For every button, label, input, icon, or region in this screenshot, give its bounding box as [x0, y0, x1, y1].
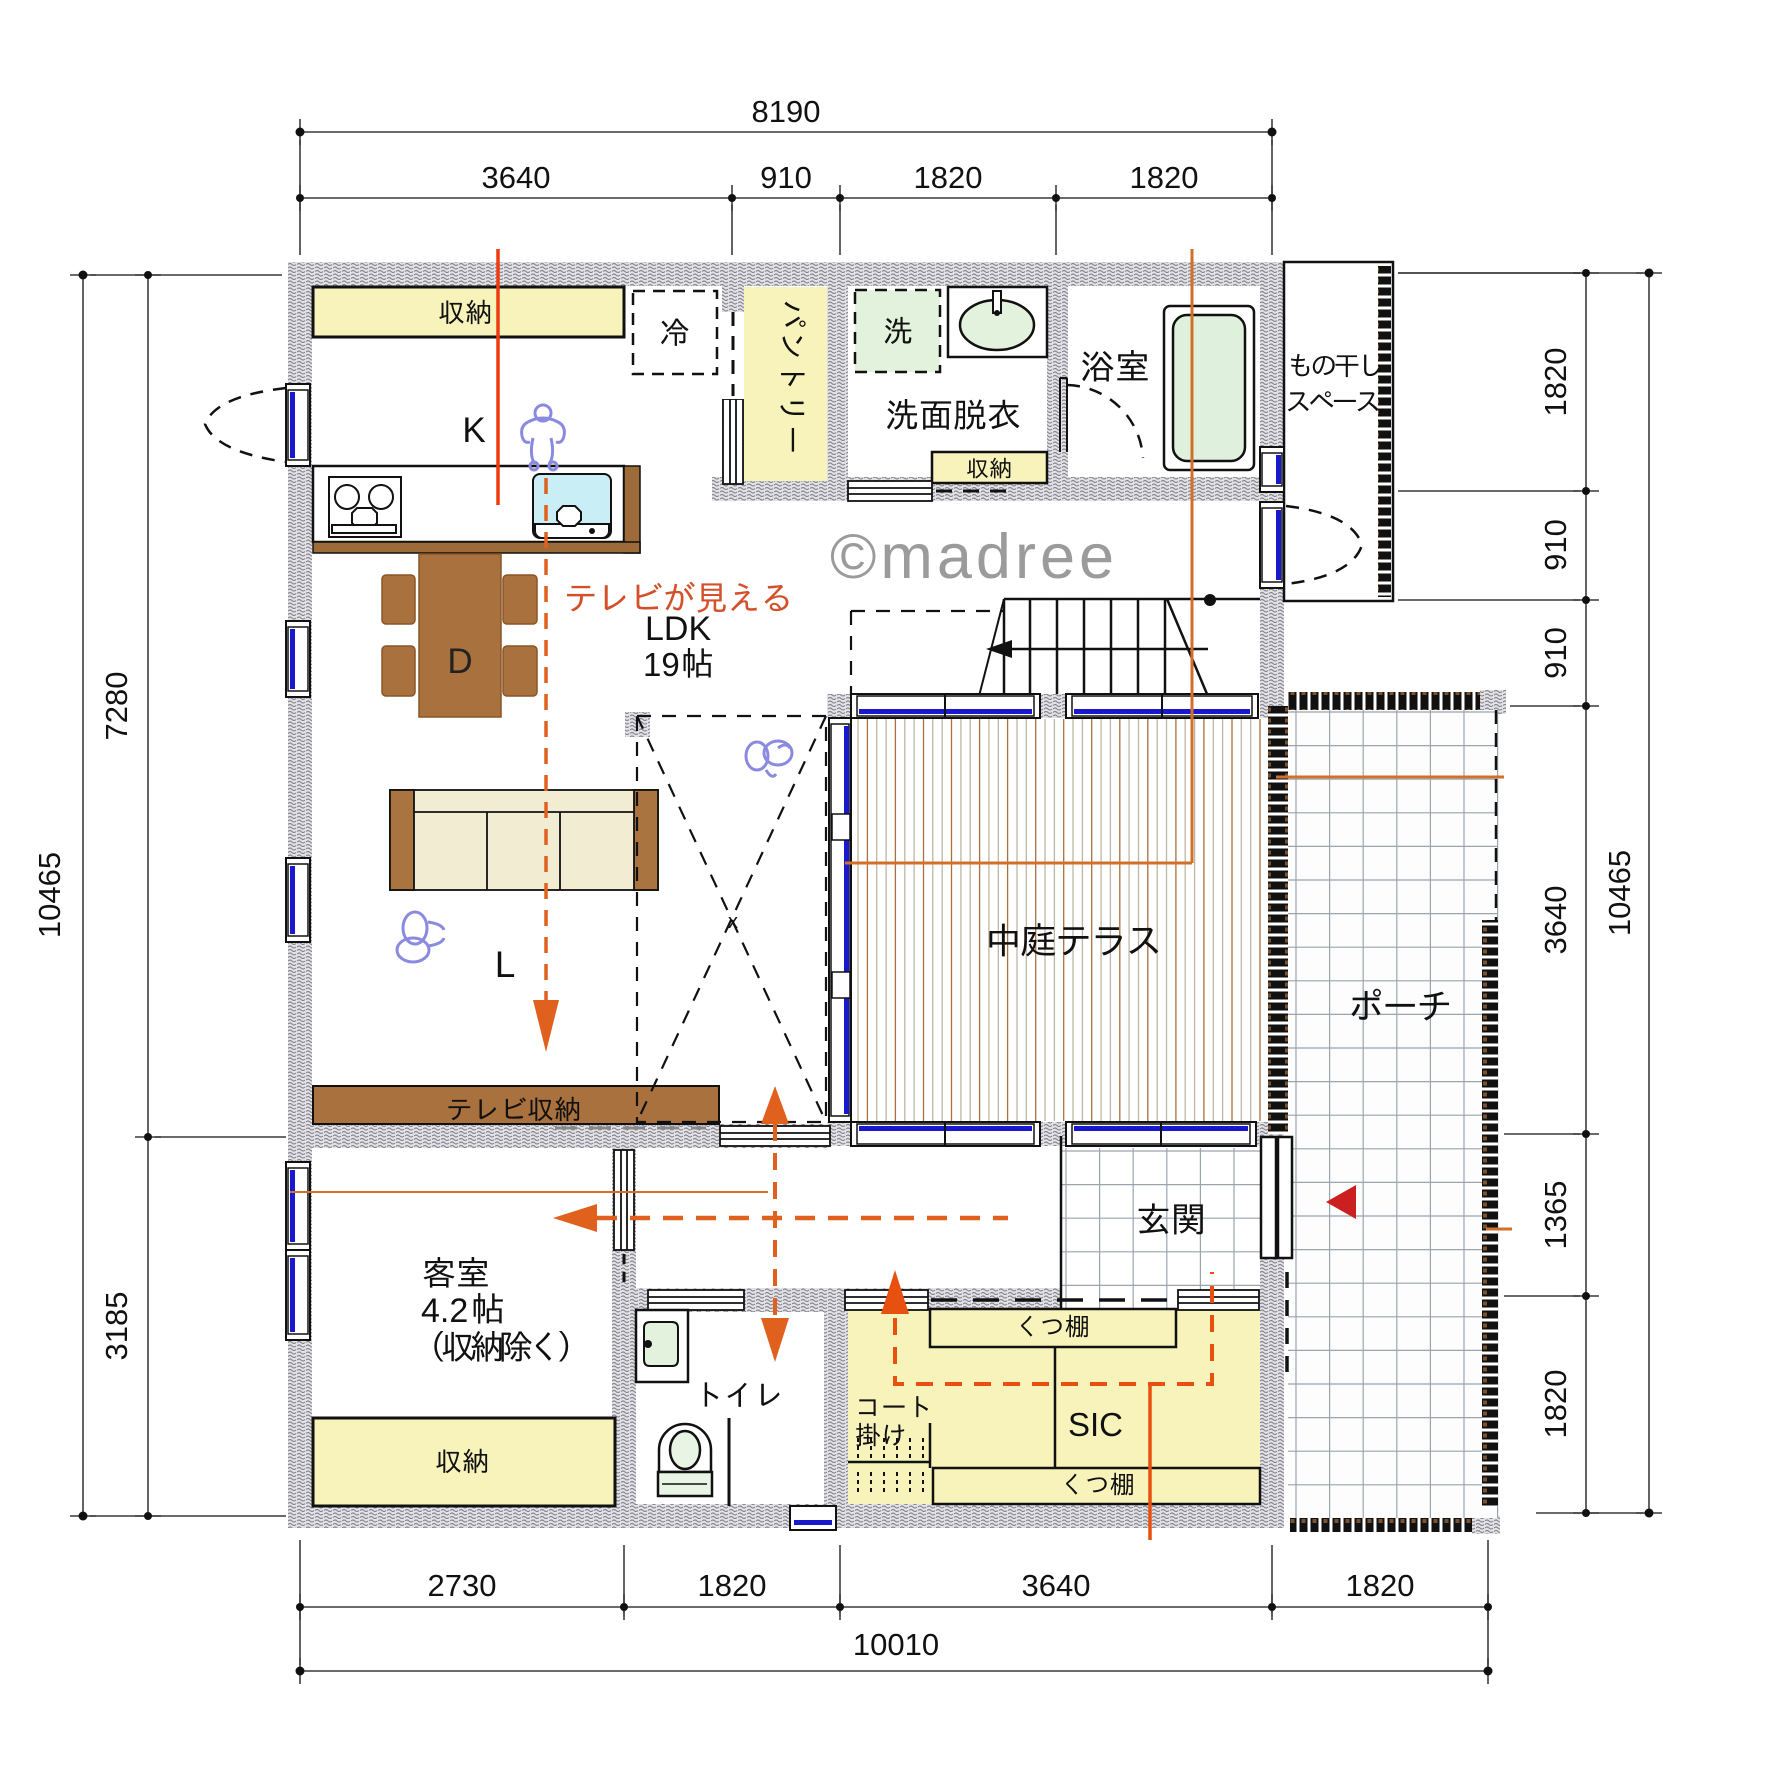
svg-text:10465: 10465: [32, 852, 67, 938]
svg-text:1820: 1820: [1538, 1370, 1573, 1439]
svg-text:1820: 1820: [1346, 1568, 1415, 1603]
svg-text:K: K: [462, 411, 485, 450]
svg-text:8190: 8190: [752, 94, 821, 129]
svg-text:LDK: LDK: [645, 610, 711, 648]
svg-text:x: x: [728, 911, 738, 933]
svg-text:1820: 1820: [698, 1568, 767, 1603]
svg-text:1365: 1365: [1538, 1181, 1573, 1250]
svg-text:1820: 1820: [914, 160, 983, 195]
svg-text:2730: 2730: [428, 1568, 497, 1603]
svg-text:910: 910: [1538, 627, 1573, 679]
svg-text:3640: 3640: [1538, 886, 1573, 955]
svg-text:19: 19: [643, 646, 680, 683]
svg-text:©madree: ©madree: [830, 522, 1118, 592]
svg-text:3640: 3640: [1022, 1568, 1091, 1603]
svg-text:3185: 3185: [99, 1292, 134, 1361]
svg-text:SIC: SIC: [1068, 1406, 1123, 1443]
svg-text:3640: 3640: [482, 160, 551, 195]
svg-text:10465: 10465: [1602, 850, 1637, 936]
svg-text:7280: 7280: [99, 672, 134, 741]
svg-text:10010: 10010: [853, 1627, 939, 1662]
svg-text:910: 910: [760, 160, 812, 195]
svg-text:1820: 1820: [1538, 348, 1573, 417]
svg-text:D: D: [447, 642, 472, 681]
svg-text:1820: 1820: [1130, 160, 1199, 195]
svg-text:L: L: [495, 944, 516, 985]
svg-text:910: 910: [1538, 519, 1573, 571]
svg-text:4.2: 4.2: [421, 1292, 468, 1330]
